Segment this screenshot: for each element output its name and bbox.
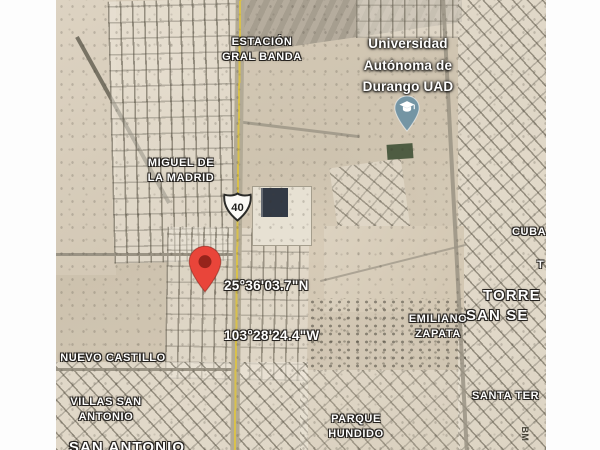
dropped-pin-coordinates: 25°36'03.7"N 103°28'24.4"W: [224, 249, 374, 374]
label-nuevo-castillo: NUEVO CASTILLO: [56, 351, 176, 366]
coordinates-longitude: 103°28'24.4"W: [224, 324, 374, 349]
sports-field-green: [387, 143, 414, 160]
label-estacion-gral-banda: ESTACIÓN GRAL BANDA: [201, 35, 323, 64]
highway-40-shield: 40: [222, 192, 253, 222]
pin-inner-dot: [199, 255, 212, 268]
label-road-name-partial: BM: [518, 424, 530, 444]
label-san-antonio-partial: SAN ANTONIO: [56, 438, 212, 450]
label-miguel-de-la-madrid: MIGUEL DE LA MADRID: [120, 156, 242, 185]
satellite-map-canvas[interactable]: 40 ESTACIÓN GRAL BANDA MIGUEL DE LA MADR…: [56, 0, 546, 450]
label-villas-san-antonio: VILLAS SAN ANTONIO: [56, 395, 168, 424]
label-universidad-autonoma-durango: Universidad Autónoma de Durango UAD: [328, 33, 488, 98]
open-field-west: [56, 0, 116, 275]
letterbox-bar-right: [546, 0, 600, 450]
route-number: 40: [231, 202, 244, 214]
label-santa-teresa-partial: SANTA TER: [472, 389, 546, 404]
label-torreon-partial: TORRE: [483, 286, 546, 306]
map-screenshot-frame: 40 ESTACIÓN GRAL BANDA MIGUEL DE LA MADR…: [0, 0, 600, 450]
cross-street-southwest: [56, 368, 238, 371]
coordinates-latitude: 25°36'03.7"N: [224, 274, 374, 299]
connector-road-center: [242, 121, 359, 138]
dark-warehouse-building: [261, 188, 288, 217]
location-pin-icon: [189, 246, 221, 292]
red-location-pin[interactable]: [188, 245, 222, 293]
label-san-se-partial: SAN SE: [466, 306, 546, 326]
label-cuba-partial: CUBA: [512, 225, 546, 240]
label-parque-hundido: PARQUE HUNDIDO: [296, 412, 416, 441]
university-pin[interactable]: [394, 95, 420, 132]
letterbox-bar-left: [0, 0, 56, 450]
label-t-partial: T: [537, 258, 546, 273]
